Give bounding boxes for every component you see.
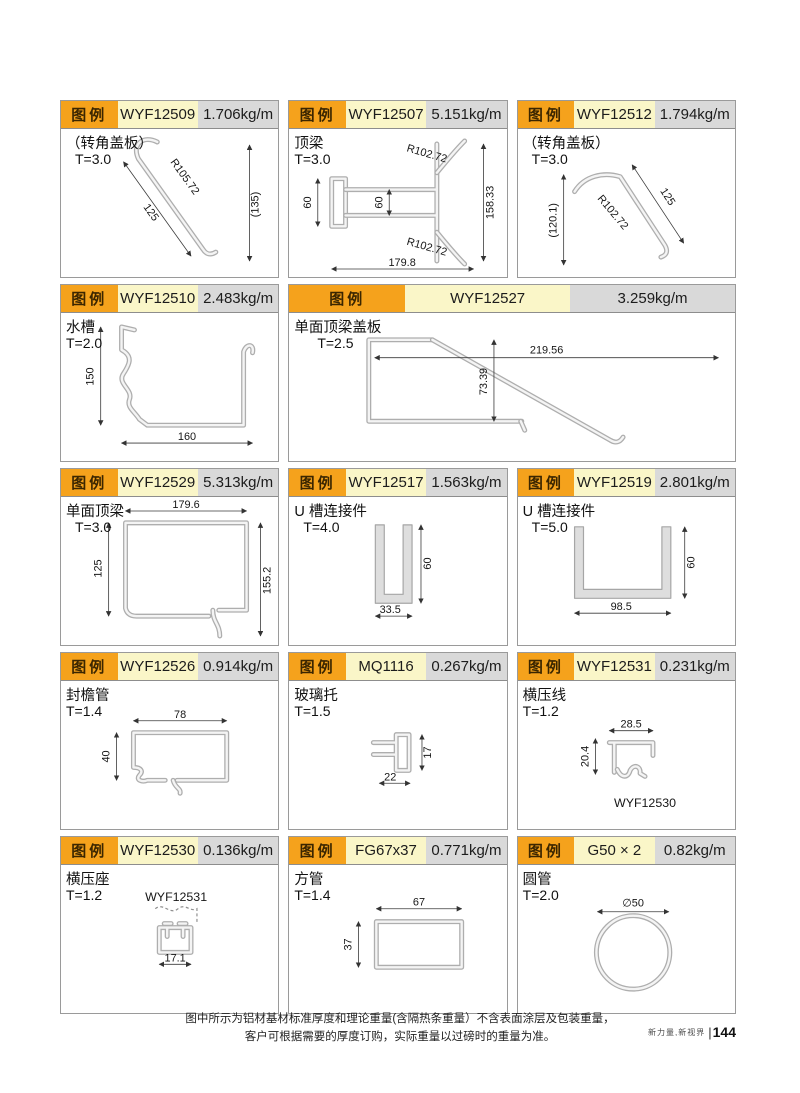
legend-badge: 图例 xyxy=(61,469,118,496)
legend-badge: 图例 xyxy=(518,653,575,680)
card-body: 圆管 T=2.0 ∅50 xyxy=(518,865,735,1013)
card-body: 单面顶梁 T=3.0 179.6 125 155.2 xyxy=(61,497,278,645)
dim-label: 37 xyxy=(343,938,355,950)
profile-code: WYF12526 xyxy=(118,653,198,680)
profile-code: G50 × 2 xyxy=(574,837,654,864)
profile-weight: 0.231kg/m xyxy=(655,653,735,680)
profile-name: 玻璃托 xyxy=(294,684,338,705)
profile-thickness: T=1.2 xyxy=(523,703,559,719)
profile-name: （转角盖板） xyxy=(66,132,153,153)
card-header: 图例 WYF12510 2.483kg/m xyxy=(61,285,278,313)
profile-thickness: T=2.0 xyxy=(66,335,102,351)
related-code-label: WYF12530 xyxy=(614,796,676,810)
card-header: 图例 WYF12530 0.136kg/m xyxy=(61,837,278,865)
profile-grid: 图例 WYF12509 1.706kg/m （转角盖板） T=3.0 R105.… xyxy=(60,100,736,1014)
profile-thickness: T=2.5 xyxy=(317,335,353,351)
dim-label: 17 xyxy=(422,746,434,758)
card-header: 图例 FG67x37 0.771kg/m xyxy=(289,837,506,865)
profile-thickness: T=1.5 xyxy=(294,703,330,719)
card-header: 图例 WYF12509 1.706kg/m xyxy=(61,101,278,129)
profile-name: U 槽连接件 xyxy=(523,500,596,521)
profile-name: 圆管 xyxy=(523,868,552,889)
dim-label: 155.2 xyxy=(261,567,273,594)
card-body: （转角盖板） T=3.0 R102.72 125 (120.1) xyxy=(518,129,735,277)
dim-label: 60 xyxy=(302,196,314,208)
card-header: 图例 WYF12526 0.914kg/m xyxy=(61,653,278,681)
dim-label: 78 xyxy=(174,709,186,721)
profile-weight: 0.267kg/m xyxy=(426,653,506,680)
dim-label: 179.8 xyxy=(389,257,416,269)
page-number: 144 xyxy=(713,1024,736,1040)
legend-badge: 图例 xyxy=(61,101,118,128)
profile-name: 封檐管 xyxy=(66,684,110,705)
dim-label: 33.5 xyxy=(380,604,401,616)
legend-badge: 图例 xyxy=(518,837,575,864)
profile-thickness: T=1.4 xyxy=(66,703,102,719)
profile-weight: 1.794kg/m xyxy=(655,101,735,128)
profile-name: 横压线 xyxy=(523,684,567,705)
profile-card-wyf12531: 图例 WYF12531 0.231kg/m 横压线 T=1.2 28.5 20.… xyxy=(517,652,736,830)
profile-code: WYF12527 xyxy=(405,285,570,312)
dim-label: 125 xyxy=(141,202,161,224)
dim-label: ∅50 xyxy=(622,898,644,910)
legend-badge: 图例 xyxy=(289,837,346,864)
profile-card-wyf12509: 图例 WYF12509 1.706kg/m （转角盖板） T=3.0 R105.… xyxy=(60,100,279,278)
dim-label: 28.5 xyxy=(620,719,641,731)
dim-label: R102.72 xyxy=(594,193,630,232)
profile-card-wyf12529: 图例 WYF12529 5.313kg/m 单面顶梁 T=3.0 179.6 1… xyxy=(60,468,279,646)
profile-card-wyf12530: 图例 WYF12530 0.136kg/m 横压座 T=1.2 WYF12531… xyxy=(60,836,279,1014)
dim-label: 98.5 xyxy=(610,601,631,613)
profile-thickness: T=1.2 xyxy=(66,887,102,903)
dim-label: 219.56 xyxy=(530,345,563,357)
profile-card-fg67x37: 图例 FG67x37 0.771kg/m 方管 T=1.4 67 37 xyxy=(288,836,507,1014)
profile-card-wyf12510: 图例 WYF12510 2.483kg/m 水槽 T=2.0 150 160 xyxy=(60,284,279,462)
profile-code: WYF12517 xyxy=(346,469,426,496)
card-body: 单面顶梁盖板 T=2.5 219.56 73.39 xyxy=(289,313,735,461)
dim-label: 125 xyxy=(657,186,677,208)
profile-thickness: T=3.0 xyxy=(532,151,568,167)
profile-code: FG67x37 xyxy=(346,837,426,864)
profile-weight: 1.563kg/m xyxy=(426,469,506,496)
profile-name: U 槽连接件 xyxy=(294,500,367,521)
profile-weight: 2.801kg/m xyxy=(655,469,735,496)
card-body: U 槽连接件 T=5.0 60 98.5 xyxy=(518,497,735,645)
dim-label: 60 xyxy=(422,557,434,569)
card-header: 图例 WYF12519 2.801kg/m xyxy=(518,469,735,497)
profile-code: WYF12509 xyxy=(118,101,198,128)
card-body: 封檐管 T=1.4 78 40 xyxy=(61,681,278,829)
card-header: 图例 MQ1116 0.267kg/m xyxy=(289,653,506,681)
profile-code: WYF12530 xyxy=(118,837,198,864)
dim-label: 22 xyxy=(384,771,396,783)
profile-card-g50x2: 图例 G50 × 2 0.82kg/m 圆管 T=2.0 ∅50 xyxy=(517,836,736,1014)
profile-name: 单面顶梁 xyxy=(66,500,124,521)
profile-name: 顶梁 xyxy=(294,132,323,153)
profile-card-wyf12526: 图例 WYF12526 0.914kg/m 封檐管 T=1.4 78 40 xyxy=(60,652,279,830)
card-body: 方管 T=1.4 67 37 xyxy=(289,865,506,1013)
dim-label: R102.72 xyxy=(406,143,449,166)
card-header: 图例 WYF12512 1.794kg/m xyxy=(518,101,735,129)
profile-thickness: T=5.0 xyxy=(532,519,568,535)
profile-code: WYF12512 xyxy=(574,101,654,128)
profile-weight: 1.706kg/m xyxy=(198,101,278,128)
profile-thickness: T=2.0 xyxy=(523,887,559,903)
profile-name: （转角盖板） xyxy=(523,132,610,153)
profile-weight: 2.483kg/m xyxy=(198,285,278,312)
card-body: 横压线 T=1.2 28.5 20.4 WYF12530 xyxy=(518,681,735,829)
page-footer-brand: 新力量,新视界 | 144 xyxy=(648,1024,736,1040)
profile-code: MQ1116 xyxy=(346,653,426,680)
dim-label: 20.4 xyxy=(579,746,591,767)
profile-thickness: T=3.0 xyxy=(75,151,111,167)
profile-code: WYF12529 xyxy=(118,469,198,496)
profile-weight: 5.313kg/m xyxy=(198,469,278,496)
card-header: 图例 G50 × 2 0.82kg/m xyxy=(518,837,735,865)
legend-badge: 图例 xyxy=(289,469,346,496)
card-header: 图例 WYF12529 5.313kg/m xyxy=(61,469,278,497)
dim-label: 17.1 xyxy=(165,952,186,964)
legend-badge: 图例 xyxy=(61,285,118,312)
dim-label: 179.6 xyxy=(172,499,199,511)
card-body: 水槽 T=2.0 150 160 xyxy=(61,313,278,461)
profile-code: WYF12507 xyxy=(346,101,426,128)
card-body: 横压座 T=1.2 WYF12531 17.1 xyxy=(61,865,278,1013)
profile-name: 水槽 xyxy=(66,316,95,337)
profile-card-wyf12527: 图例 WYF12527 3.259kg/m 单面顶梁盖板 T=2.5 219.5… xyxy=(288,284,736,462)
card-header: 图例 WYF12517 1.563kg/m xyxy=(289,469,506,497)
profile-code: WYF12519 xyxy=(574,469,654,496)
dim-label: 60 xyxy=(685,556,697,568)
dim-label: 125 xyxy=(93,559,105,577)
profile-thickness: T=3.0 xyxy=(294,151,330,167)
profile-name: 方管 xyxy=(294,868,323,889)
related-code-label: WYF12531 xyxy=(145,890,207,904)
dim-label: 150 xyxy=(85,367,97,385)
card-body: U 槽连接件 T=4.0 60 33.5 xyxy=(289,497,506,645)
profile-card-wyf12517: 图例 WYF12517 1.563kg/m U 槽连接件 T=4.0 60 33… xyxy=(288,468,507,646)
profile-weight: 5.151kg/m xyxy=(426,101,506,128)
profile-code: WYF12531 xyxy=(574,653,654,680)
dim-label: (120.1) xyxy=(547,203,559,238)
legend-badge: 图例 xyxy=(289,101,346,128)
legend-badge: 图例 xyxy=(61,837,118,864)
dim-label: 60 xyxy=(374,196,386,208)
legend-badge: 图例 xyxy=(289,653,346,680)
dim-label: (135) xyxy=(249,192,261,217)
profile-code: WYF12510 xyxy=(118,285,198,312)
dim-label: 67 xyxy=(413,897,425,909)
profile-card-wyf12507: 图例 WYF12507 5.151kg/m 顶梁 T=3.0 R102.72 6… xyxy=(288,100,507,278)
legend-badge: 图例 xyxy=(518,101,575,128)
dim-label: R105.72 xyxy=(168,157,202,197)
profile-thickness: T=1.4 xyxy=(294,887,330,903)
profile-weight: 3.259kg/m xyxy=(570,285,735,312)
card-body: 顶梁 T=3.0 R102.72 60 60 158.33 R102.72 17… xyxy=(289,129,506,277)
dim-label: 158.33 xyxy=(485,186,497,219)
catalog-sheet: 图例 WYF12509 1.706kg/m （转角盖板） T=3.0 R105.… xyxy=(60,100,736,1014)
card-header: 图例 WYF12527 3.259kg/m xyxy=(289,285,735,313)
profile-thickness: T=4.0 xyxy=(303,519,339,535)
card-body: 玻璃托 T=1.5 17 22 xyxy=(289,681,506,829)
profile-name: 单面顶梁盖板 xyxy=(294,316,381,337)
card-header: 图例 WYF12531 0.231kg/m xyxy=(518,653,735,681)
profile-name: 横压座 xyxy=(66,868,110,889)
card-body: （转角盖板） T=3.0 R105.72 125 (135) xyxy=(61,129,278,277)
profile-card-wyf12512: 图例 WYF12512 1.794kg/m （转角盖板） T=3.0 R102.… xyxy=(517,100,736,278)
profile-weight: 0.136kg/m xyxy=(198,837,278,864)
profile-thickness: T=3.0 xyxy=(75,519,111,535)
profile-card-mq1116: 图例 MQ1116 0.267kg/m 玻璃托 T=1.5 17 22 xyxy=(288,652,507,830)
brand-slogan: 新力量,新视界 xyxy=(648,1027,705,1038)
profile-weight: 0.82kg/m xyxy=(655,837,735,864)
profile-weight: 0.914kg/m xyxy=(198,653,278,680)
profile-weight: 0.771kg/m xyxy=(426,837,506,864)
dim-label: 40 xyxy=(101,750,113,762)
brand-separator: | xyxy=(708,1025,711,1040)
dim-label: 73.39 xyxy=(478,368,490,395)
profile-card-wyf12519: 图例 WYF12519 2.801kg/m U 槽连接件 T=5.0 60 98… xyxy=(517,468,736,646)
legend-badge: 图例 xyxy=(289,285,405,312)
legend-badge: 图例 xyxy=(518,469,575,496)
card-header: 图例 WYF12507 5.151kg/m xyxy=(289,101,506,129)
legend-badge: 图例 xyxy=(61,653,118,680)
dim-label: 160 xyxy=(178,431,196,443)
